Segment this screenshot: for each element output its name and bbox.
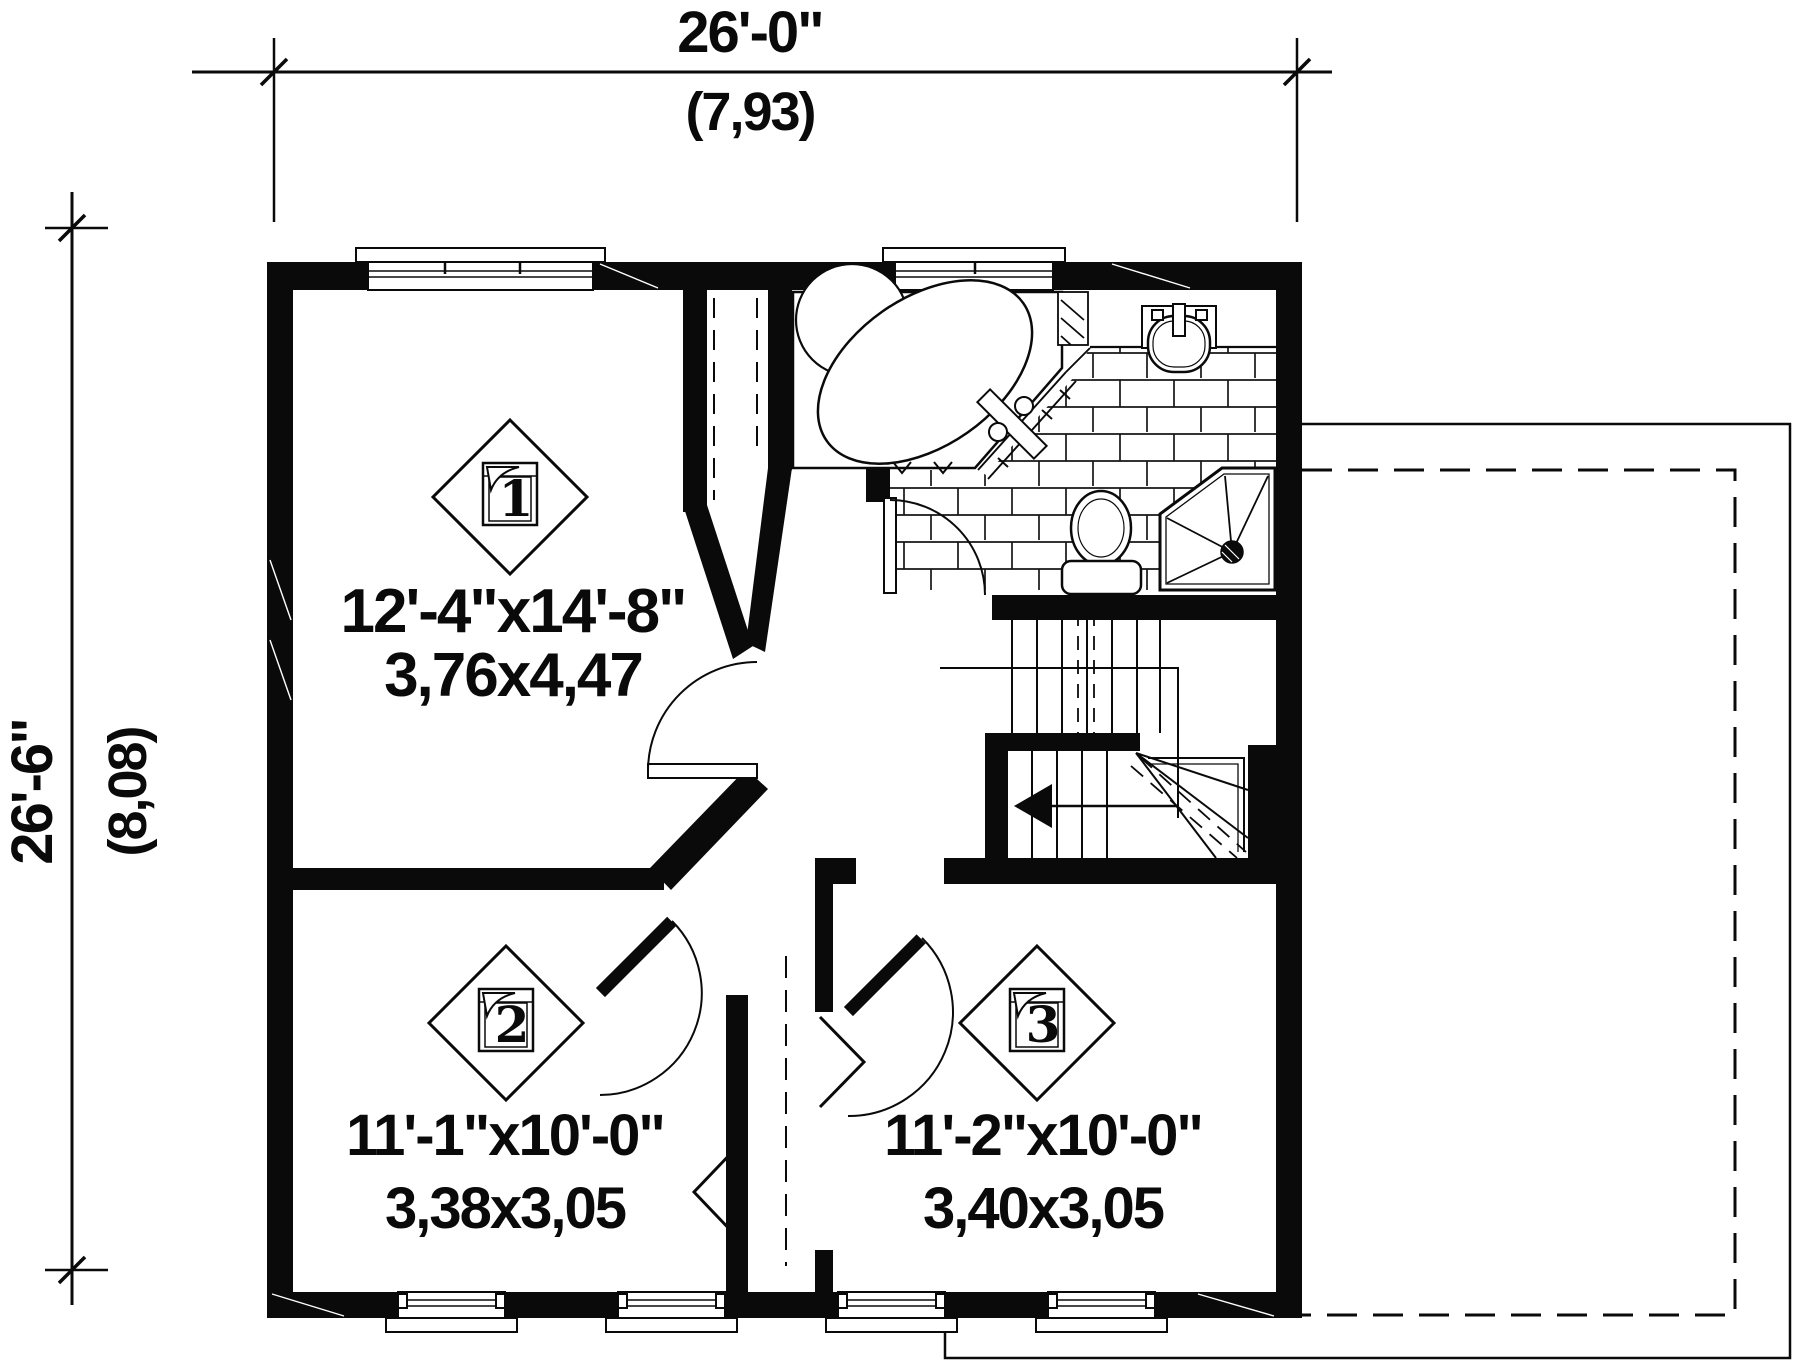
room3-size-metric: 3,40x3,05 xyxy=(923,1176,1164,1241)
bathroom-knee-wall xyxy=(1058,292,1088,345)
room3-size-imperial: 11'-2"x10'-0" xyxy=(884,1103,1202,1168)
room-marker-number: 2 xyxy=(495,995,530,1054)
closet-doors xyxy=(694,956,864,1266)
floor-plan-page: 26'-0" (7,93) 26'-6" (8,08) xyxy=(0,0,1800,1368)
sink-icon xyxy=(1142,304,1216,372)
room2-door-icon xyxy=(595,916,702,1095)
window-icon xyxy=(606,1292,737,1332)
top-dimension-metric: (7,93) xyxy=(685,82,814,142)
room1-size-imperial: 12'-4"x14'-8" xyxy=(341,577,686,646)
room-marker-2: 2 xyxy=(429,946,583,1100)
room-marker-1: 1 xyxy=(433,420,587,574)
left-dimension-metric: (8,08) xyxy=(98,727,158,856)
room2-size-imperial: 11'-1"x10'-0" xyxy=(346,1103,664,1168)
floor-plan-drawing: 26'-0" (7,93) 26'-6" (8,08) xyxy=(0,0,1800,1368)
window-icon xyxy=(386,1292,517,1332)
stair-direction-arrow xyxy=(1014,784,1176,828)
room-marker-number: 1 xyxy=(499,469,534,528)
room3-door-icon xyxy=(843,934,953,1116)
window-icon xyxy=(356,248,605,290)
room1-size-metric: 3,76x4,47 xyxy=(384,641,642,710)
room-marker-number: 3 xyxy=(1026,995,1061,1054)
window-icon xyxy=(1036,1292,1167,1332)
left-dimension-imperial: 26'-6" xyxy=(0,719,65,864)
linen-closet xyxy=(714,298,757,500)
window-icon xyxy=(826,1292,957,1332)
top-dimension-imperial: 26'-0" xyxy=(677,0,822,65)
room-marker-3: 3 xyxy=(960,946,1114,1100)
room1-door-icon xyxy=(648,662,757,778)
room2-size-metric: 3,38x3,05 xyxy=(385,1176,626,1241)
